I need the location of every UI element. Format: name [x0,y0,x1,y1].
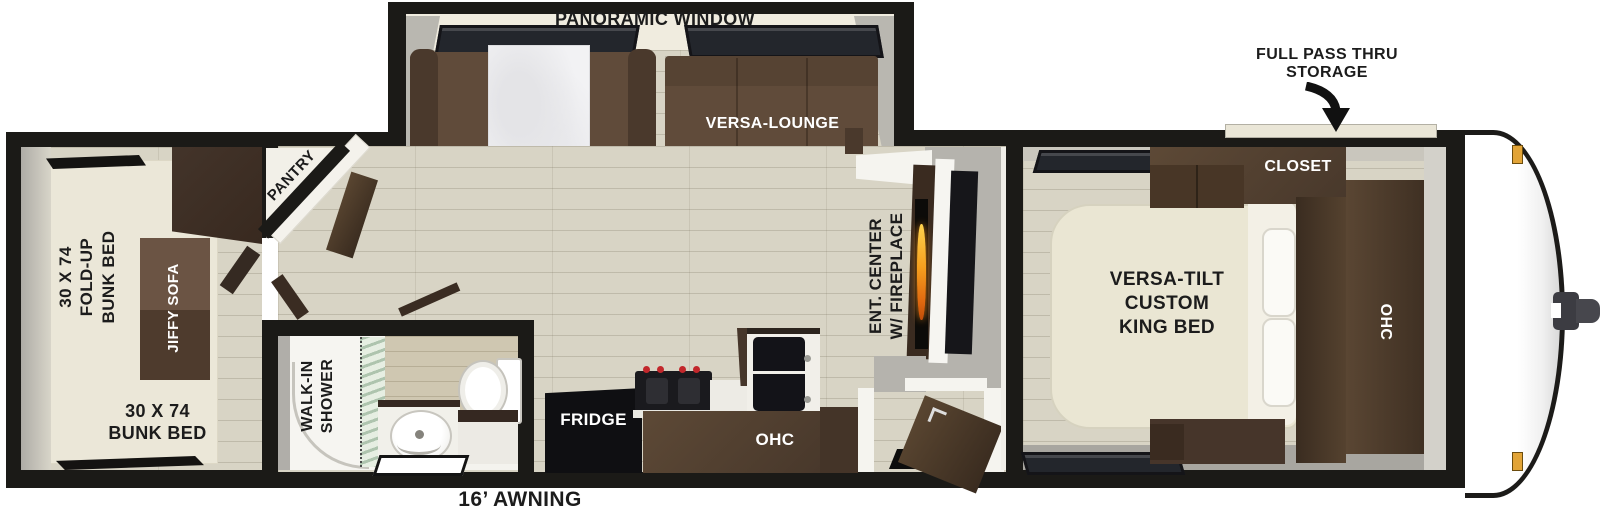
walk-in-shower-label: WALK-IN SHOWER [298,336,338,456]
fold-up-bunk-line2: FOLD-UP [76,238,97,316]
bunk-bed-line1: 30 X 74 [125,400,190,423]
faucet-top [804,355,811,362]
stove-knob-2 [657,366,664,373]
bed-foot-step [1150,424,1184,460]
front-wall [1446,130,1465,488]
king-bed-line2: CUSTOM [1125,292,1209,316]
jiffy-sofa-label: JIFFY SOFA [164,248,184,368]
versa-lounge-seam-2 [806,58,808,158]
ent-center-label: ENT. CENTER W/ FIREPLACE [865,201,907,351]
kitchen-end-cabinet [820,407,858,473]
floorplan-canvas: PANORAMIC WINDOW VERSA-LOUNGE 30 X 74 FO… [0,0,1600,515]
toilet-counter-edge [458,410,518,422]
sink-basin-shadow [397,434,441,455]
stove-burner-left [646,378,668,404]
fold-up-bunk-line1: 30 X 74 [55,246,76,307]
vanity-counter-edge [378,400,460,407]
ent-center-line1: ENT. CENTER [865,218,886,334]
stove-knob-3 [679,366,686,373]
front-interior-band [1424,147,1446,470]
entry-wall-notch [905,378,987,391]
stove-knob-4 [693,366,700,373]
stove-burner-right [678,378,700,404]
king-bed-line3: KING BED [1119,316,1215,340]
walk-in-shower-line2: SHOWER [318,359,338,433]
bathroom-top-wall [262,320,534,336]
pass-thru-line2: STORAGE [1286,64,1368,82]
fridge-text: FRIDGE [560,409,627,430]
bath-mat [373,455,470,476]
pass-thru-arrow [1294,82,1350,134]
awning-label: 16’ AWNING [415,487,625,513]
bed-head-cabinet [1296,197,1346,463]
fold-up-bunk-line3: BUNK BED [98,231,119,324]
slideout-right-wall [894,2,914,146]
closet-label: CLOSET [1248,158,1348,176]
hitch-arm [1576,299,1600,323]
bedroom-divider-wall [1006,130,1023,472]
versa-lounge-label: VERSA-LOUNGE [695,114,850,134]
fireplace-flame [917,224,926,320]
king-bed-line1: VERSA-TILT [1110,268,1224,292]
sink-divider [753,371,805,374]
walk-in-shower-line1: WALK-IN [298,360,318,431]
kitchen-ohc-label: OHC [740,430,810,450]
front-cap [1465,130,1565,498]
versa-lounge-seam-1 [736,58,738,158]
jiffy-sofa-text: JIFFY SOFA [165,263,184,353]
closet-text: CLOSET [1264,157,1331,177]
bunkroom-cabinet [172,147,262,244]
bedroom-ohc-label: OHC [1375,292,1395,352]
pass-thru-label: FULL PASS THRU STORAGE [1222,46,1432,82]
closet-panel-seam [1196,165,1198,208]
bunk-bed-line2: BUNK BED [108,422,206,445]
double-sink [753,337,805,411]
faucet-bottom [804,396,811,403]
versa-lounge-backrest [665,56,878,86]
entry-jamb-left [858,388,874,472]
fridge-label: FRIDGE [545,408,642,432]
pass-thru-line1: FULL PASS THRU [1256,46,1398,64]
bedroom-ohc-text: OHC [1375,304,1395,341]
awning-text: 16’ AWNING [458,487,581,513]
rear-wall [6,132,21,488]
pillow-top [1262,228,1296,317]
entry-door-handle [927,407,947,427]
kitchen-ohc-text: OHC [756,429,795,450]
bedroom-wall-lining [1001,147,1006,470]
stove-knob-1 [643,366,650,373]
king-bed-label: VERSA-TILT CUSTOM KING BED [1077,266,1257,342]
ent-center-line2: W/ FIREPLACE [886,213,907,340]
panoramic-window-label: PANORAMIC WINDOW [490,9,820,29]
hitch-jaw-gap [1551,303,1561,318]
slideout-left-wall [388,2,406,148]
sink-counter-edge [747,328,820,334]
bathroom-left-wall [262,320,278,474]
bedroom-window-top [1033,150,1160,173]
pillow-bottom [1262,318,1296,407]
bunk-bed-label: 30 X 74 BUNK BED [70,400,245,444]
bathroom-wall-shade [278,336,290,470]
fold-up-bunk-label: 30 X 74 FOLD-UP BUNK BED [47,197,127,357]
marker-light-bottom [1512,452,1523,471]
versa-lounge-text: VERSA-LOUNGE [706,114,840,134]
marker-light-top [1512,145,1523,164]
panoramic-window-text: PANORAMIC WINDOW [555,8,755,31]
overhead-cabinet [845,128,863,154]
